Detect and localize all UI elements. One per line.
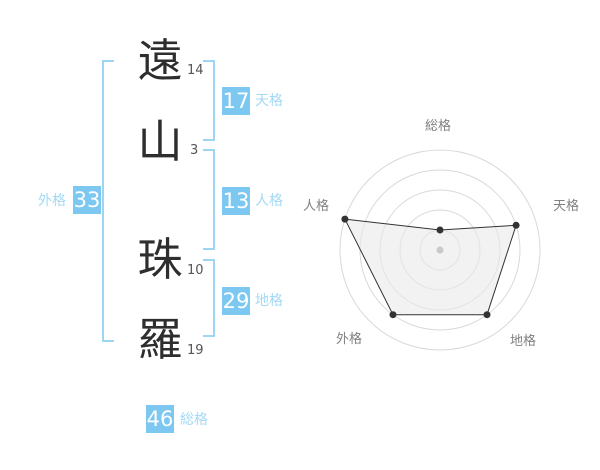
soukaku-score-box: 46	[146, 405, 174, 433]
gaikaku-score-box: 33	[73, 186, 101, 214]
name-character-1: 遠	[135, 38, 185, 83]
jinkaku-score-box: 13	[222, 187, 250, 215]
tenkaku-bracket	[203, 60, 215, 141]
name-character-3: 珠	[135, 237, 185, 282]
radar-axis-label-chikaku: 地格	[508, 335, 538, 348]
jinkaku-bracket	[203, 149, 215, 250]
name-character-4: 羅	[135, 317, 185, 362]
tenkaku-score-label: 天格	[255, 94, 283, 108]
chikaku-bracket	[203, 259, 215, 337]
gaikaku-score-label: 外格	[38, 194, 66, 208]
stroke-count-2: 3	[190, 144, 198, 157]
jinkaku-score-label: 人格	[255, 194, 283, 208]
soukaku-score-label: 総格	[180, 413, 208, 427]
stroke-count-3: 10	[187, 264, 204, 277]
gaikaku-bracket	[102, 60, 114, 342]
radar-axis-label-soukaku: 総格	[423, 120, 453, 133]
name-fortune-panel: 遠 山 珠 羅 14 3 10 19 17 天格 13 人格 29 地格 外格 …	[0, 0, 600, 470]
radar-axis-label-gaikaku: 外格	[334, 333, 364, 346]
chikaku-score-label: 地格	[255, 294, 283, 308]
tenkaku-score-box: 17	[222, 87, 250, 115]
stroke-count-1: 14	[187, 64, 204, 77]
radar-axis-label-tenkaku: 天格	[551, 200, 581, 213]
name-character-2: 山	[135, 119, 185, 164]
stroke-count-4: 19	[187, 344, 204, 357]
chikaku-score-box: 29	[222, 287, 250, 315]
radar-axis-label-jinkaku: 人格	[301, 200, 331, 213]
